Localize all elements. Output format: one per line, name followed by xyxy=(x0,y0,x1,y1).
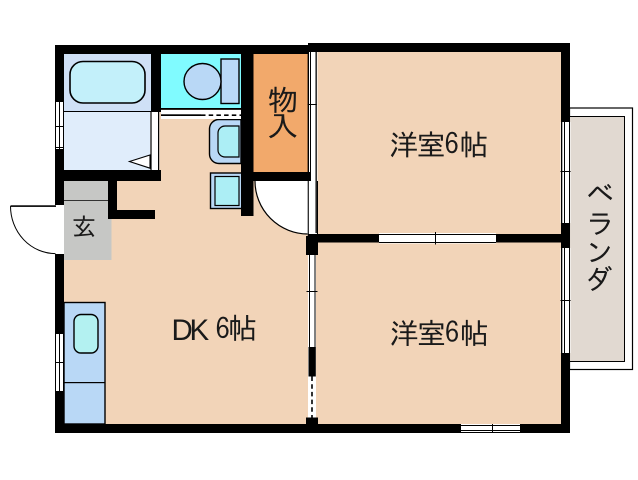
svg-text:DK: DK xyxy=(172,314,210,347)
